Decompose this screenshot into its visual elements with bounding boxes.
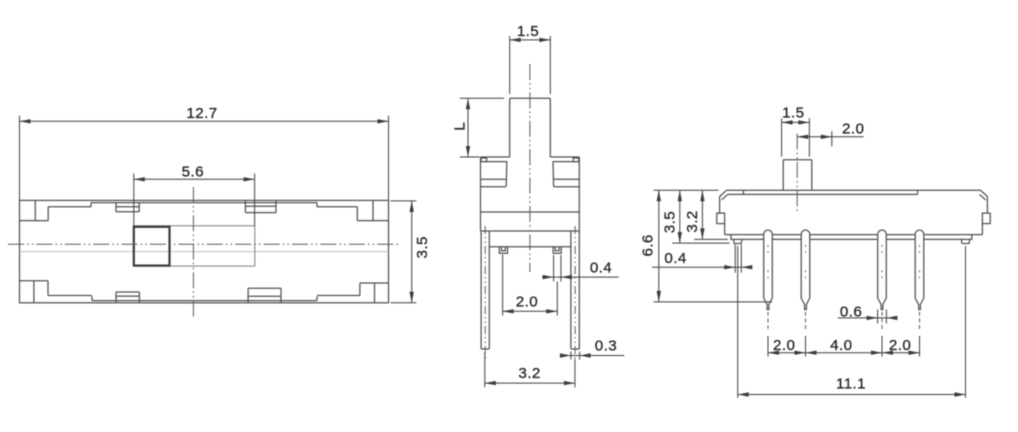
svg-text:6.6: 6.6	[639, 234, 656, 256]
svg-text:2.0: 2.0	[842, 120, 864, 137]
svg-text:5.6: 5.6	[182, 164, 204, 181]
svg-text:3.5: 3.5	[414, 236, 431, 258]
svg-text:2.0: 2.0	[889, 337, 911, 354]
svg-text:12.7: 12.7	[186, 105, 217, 122]
svg-text:3.5: 3.5	[661, 211, 678, 233]
svg-text:2.0: 2.0	[516, 293, 538, 310]
svg-text:0.4: 0.4	[590, 260, 612, 277]
svg-text:1.5: 1.5	[782, 104, 804, 121]
svg-text:3.2: 3.2	[518, 365, 540, 382]
svg-text:3.2: 3.2	[684, 210, 701, 232]
svg-text:0.6: 0.6	[840, 303, 862, 320]
svg-text:L: L	[451, 122, 468, 131]
svg-text:11.1: 11.1	[836, 376, 866, 393]
svg-text:2.0: 2.0	[773, 337, 795, 354]
svg-text:0.3: 0.3	[595, 337, 617, 354]
svg-text:4.0: 4.0	[830, 337, 852, 354]
svg-text:0.4: 0.4	[664, 250, 686, 267]
svg-text:1.5: 1.5	[517, 23, 539, 40]
